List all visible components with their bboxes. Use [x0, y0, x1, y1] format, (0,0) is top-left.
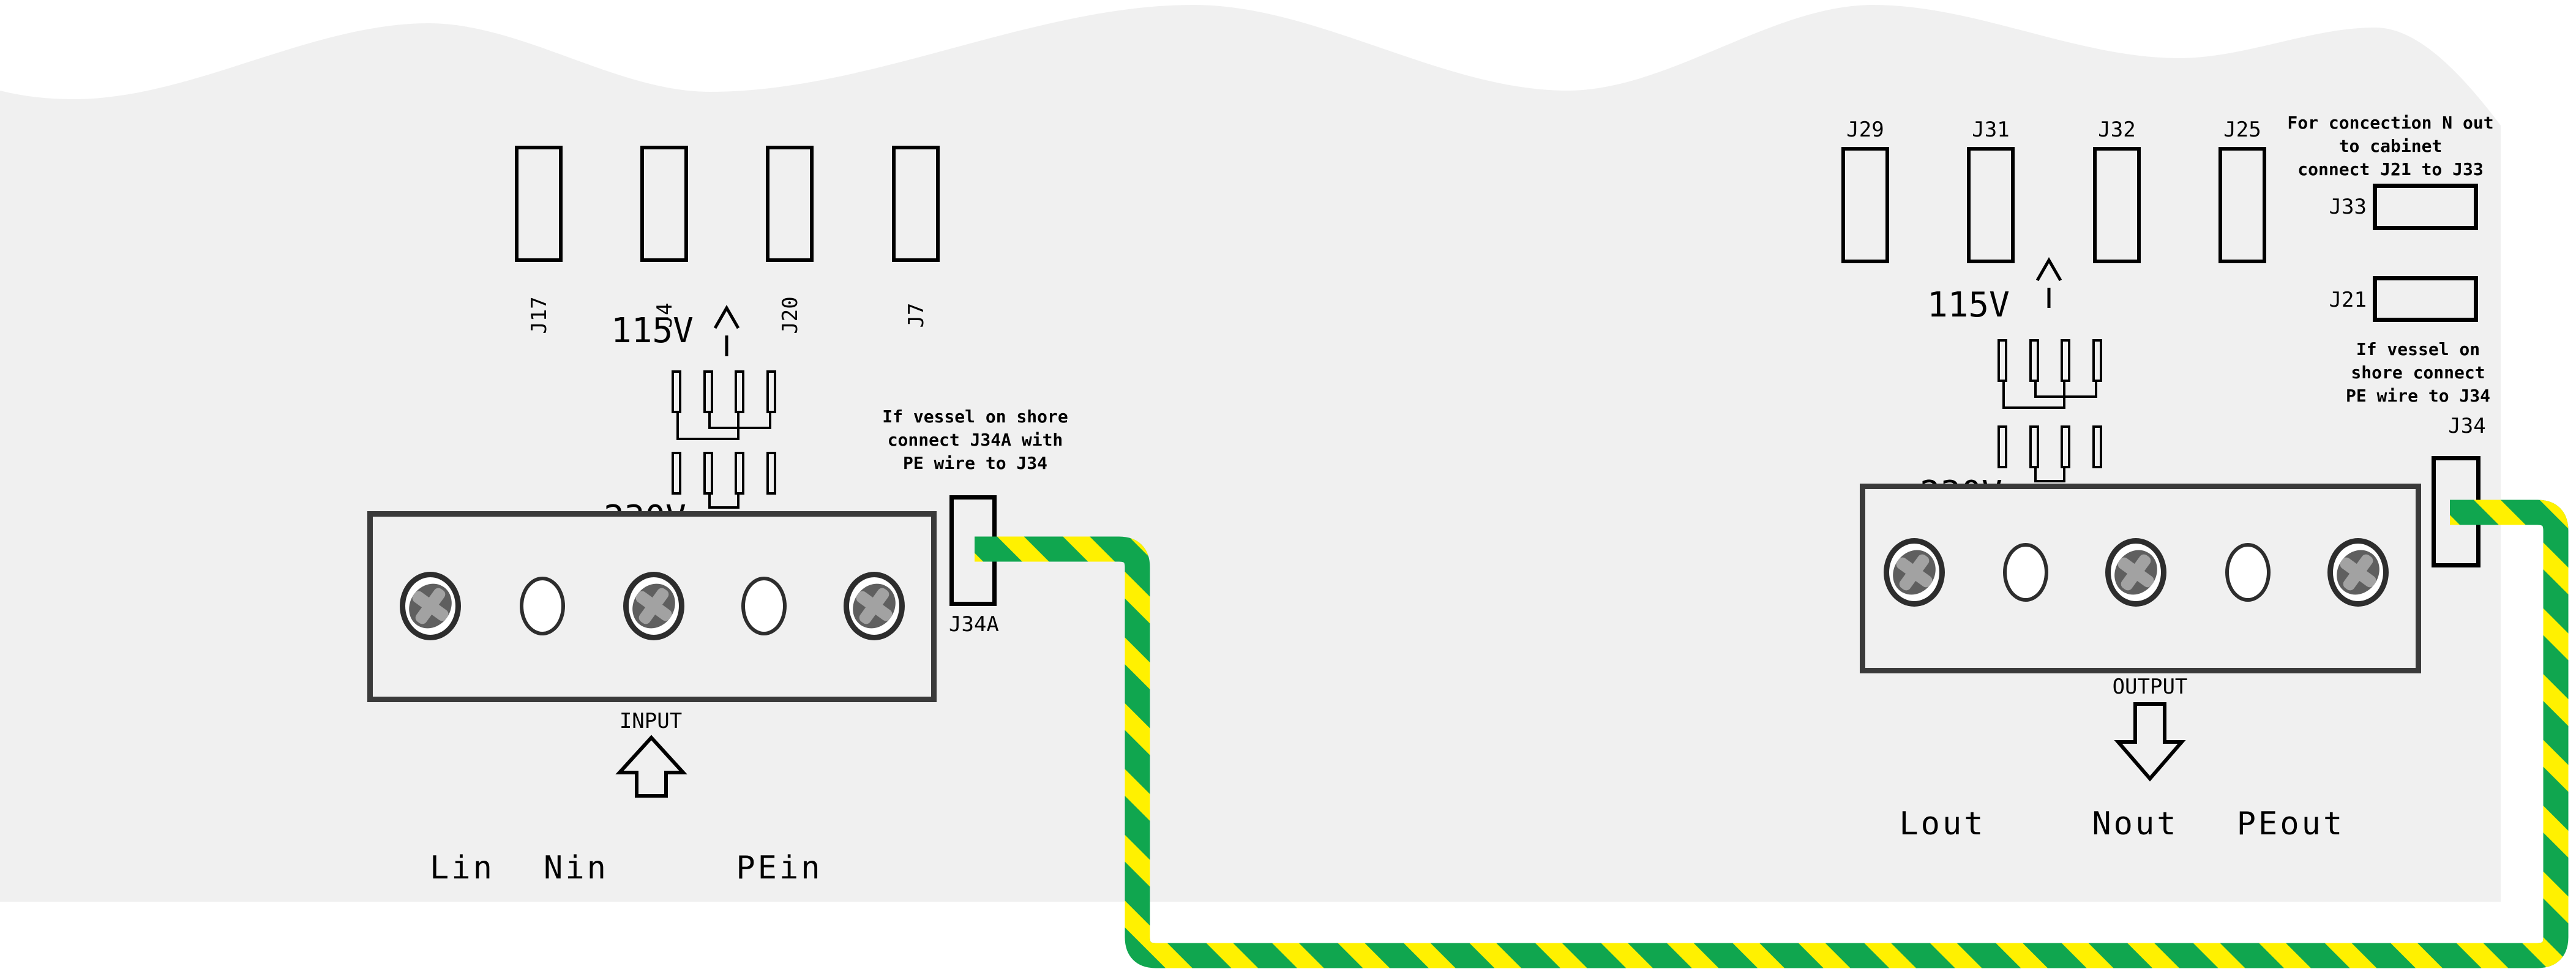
jumper-pin	[703, 452, 713, 495]
peout-label: PEout	[2205, 807, 2376, 841]
box-j33-label: J33	[2275, 195, 2367, 219]
connector-j29-label: J29	[1819, 118, 1911, 142]
terminal-hole	[741, 577, 787, 635]
jumper-link-230	[708, 495, 739, 509]
connector-j34a	[949, 495, 997, 606]
jumper-pin	[1998, 425, 2007, 468]
terminal-screw	[1884, 538, 1945, 607]
note-line: to cabinet	[2277, 135, 2504, 158]
connector-j25-label: J25	[2196, 118, 2288, 142]
terminal-hole	[520, 577, 565, 635]
screw-head-icon	[400, 575, 460, 637]
terminal-screw	[2327, 538, 2389, 607]
connector-j34-label: J34	[2433, 414, 2501, 438]
left-115v-label: 115V	[611, 312, 694, 350]
connector-j17-label: J17	[527, 269, 550, 361]
jumper-pin	[672, 452, 681, 495]
jumper-link-115	[676, 413, 739, 440]
connector-j7	[892, 146, 940, 262]
jumper-pin	[2029, 425, 2039, 468]
nin-label: Nin	[515, 851, 637, 885]
connector-j31	[1967, 147, 2015, 263]
connector-j34a-label: J34A	[949, 612, 999, 637]
connector-j34	[2432, 456, 2481, 567]
connector-j20	[766, 146, 814, 262]
lout-label: Lout	[1869, 807, 2016, 841]
pein-label: PEin	[706, 851, 853, 885]
jumper-pin	[2092, 339, 2102, 382]
connector-j32	[2093, 147, 2141, 263]
screw-head-icon	[2328, 542, 2388, 603]
box-j21-label: J21	[2275, 288, 2367, 312]
lin-label: Lin	[401, 851, 523, 885]
connector-j25	[2218, 147, 2266, 263]
note-line: PE wire to J34	[2302, 384, 2534, 408]
cabinet-note: For concection N out to cabinet connect …	[2277, 111, 2504, 181]
jumper-link-115	[2002, 382, 2065, 409]
wiring-diagram-page: J17 J4 J20 J7 115V 230V If vessel on sho…	[0, 0, 2576, 977]
terminal-screw	[400, 572, 461, 640]
jumper-pin	[672, 370, 681, 413]
note-line: shore connect	[2302, 361, 2534, 384]
box-j21	[2373, 276, 2478, 322]
right-115v-label: 115V	[1927, 286, 2010, 324]
left-shore-note: If vessel on shore connect J34A with PE …	[859, 405, 1091, 475]
screw-head-icon	[1884, 542, 1944, 603]
connector-j17	[515, 146, 563, 262]
jumper-pin	[1998, 339, 2007, 382]
jumper-pin	[2029, 339, 2039, 382]
output-label: OUTPUT	[2072, 675, 2228, 699]
jumper-link-230	[2034, 468, 2065, 482]
screw-head-icon	[844, 575, 904, 637]
right-shore-note: If vessel on shore connect PE wire to J3…	[2302, 338, 2534, 408]
terminal-hole	[2003, 543, 2048, 602]
right-voltage-arrow-icon	[2037, 260, 2061, 308]
screw-head-icon	[624, 575, 684, 637]
terminal-screw	[844, 572, 905, 640]
jumper-pin	[735, 452, 744, 495]
note-line: If vessel on shore	[859, 405, 1091, 429]
connector-j32-label: J32	[2071, 118, 2163, 142]
note-line: connect J34A with	[859, 429, 1091, 452]
output-direction-arrow-icon	[2118, 704, 2182, 779]
connector-j4	[640, 146, 688, 262]
note-line: If vessel on	[2302, 338, 2534, 361]
jumper-pin	[766, 452, 776, 495]
jumper-pin	[2061, 339, 2070, 382]
note-line: connect J21 to J33	[2277, 158, 2504, 181]
terminal-screw	[2105, 538, 2166, 607]
connector-j7-label: J7	[904, 269, 927, 361]
left-voltage-arrow-icon	[715, 308, 738, 356]
input-direction-arrow-icon	[620, 738, 683, 796]
terminal-screw	[623, 572, 684, 640]
box-j33	[2373, 184, 2478, 230]
connector-j20-label: J20	[778, 269, 801, 361]
jumper-pin	[703, 370, 713, 413]
note-line: PE wire to J34	[859, 452, 1091, 475]
jumper-pin	[2061, 425, 2070, 468]
jumper-pin	[766, 370, 776, 413]
connector-j29	[1841, 147, 1889, 263]
nout-label: Nout	[2062, 807, 2209, 841]
screw-head-icon	[2106, 542, 2166, 603]
connector-j31-label: J31	[1945, 118, 2037, 142]
jumper-pin	[735, 370, 744, 413]
terminal-hole	[2225, 543, 2271, 602]
input-label: INPUT	[590, 709, 712, 733]
jumper-pin	[2092, 425, 2102, 468]
note-line: For concection N out	[2277, 111, 2504, 135]
